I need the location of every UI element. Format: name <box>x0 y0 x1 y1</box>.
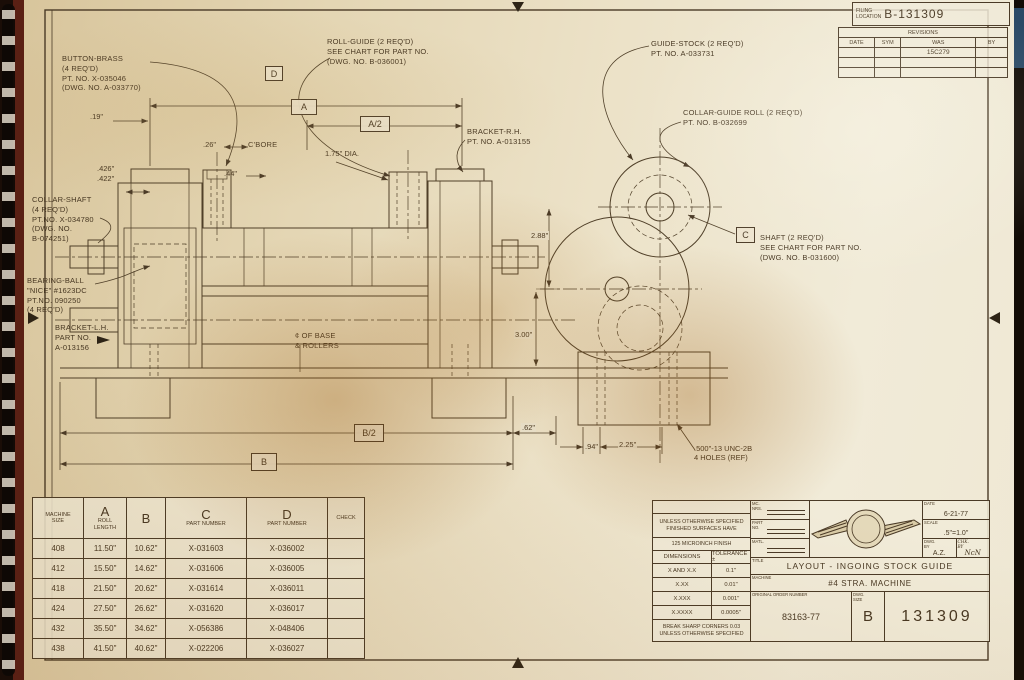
machine-size-chart: MACHINE SIZE AROLL LENGTH B CPART NUMBER… <box>32 497 365 659</box>
dim-288: 2.88" <box>530 231 549 240</box>
photographed-engineering-drawing: FILING LOCATION B-131309 REVISIONS DATE … <box>0 0 1024 680</box>
end-view <box>540 128 722 463</box>
spec-note: UNLESS OTHERWISE SPECIFIED FINISHED SURF… <box>653 514 750 538</box>
dim-thread-note: .500"-13 UNC-2B 4 HOLES (REF) <box>694 444 784 462</box>
chart-header-row: MACHINE SIZE AROLL LENGTH B CPART NUMBER… <box>33 498 365 539</box>
tolerance-row: X.XXX0.001" <box>653 592 750 606</box>
tolerance-row: X AND X.X0.1" <box>653 564 750 578</box>
title-block: UNLESS OTHERWISE SPECIFIED FINISHED SURF… <box>652 500 990 642</box>
checked-by-value: NcN <box>965 549 981 557</box>
filing-location-number: B-131309 <box>884 7 944 21</box>
revisions-col-by: BY <box>976 38 1008 48</box>
revision-row: 15C279 <box>839 48 1008 58</box>
mark-a: A <box>291 99 317 115</box>
side-view <box>55 150 728 418</box>
mark-a-half: A/2 <box>360 116 390 132</box>
revisions-title: REVISIONS <box>839 28 1008 38</box>
mark-b: B <box>251 453 277 471</box>
scale-value: .5"=1.0" <box>944 530 969 538</box>
revision-row <box>839 68 1008 78</box>
machine-row: MACHINE #4 STRA. MACHINE <box>751 575 989 592</box>
spec-empty-row <box>653 501 750 514</box>
revision-row <box>839 58 1008 68</box>
title-block-meta: DATE 6-21-77 SCALE .5"=1.0" DWG. BY A.Z.… <box>922 501 989 557</box>
break-corners-note: BREAK SHARP CORNERS 0.03 UNLESS OTHERWIS… <box>653 620 750 641</box>
chart-row: 43841.50"40.62"X-022206X-036027 <box>33 639 365 659</box>
revisions-col-sym: SYM <box>875 38 901 48</box>
chart-row: 42427.50"26.62"X-031620X-036017 <box>33 599 365 619</box>
binder-rings <box>2 4 15 676</box>
callout-guide-stock: GUIDE-STOCK (2 REQ'D) PT. NO. A-033731 <box>651 39 781 59</box>
dim-175-dia: 1.75" DIA. <box>325 149 359 158</box>
dimension-lines <box>60 98 662 470</box>
dim-225: 2.25" <box>618 440 637 449</box>
callout-bracket-rh: BRACKET-R.H. PT. NO. A-013155 <box>467 127 557 147</box>
tolerance-row: X.XX0.01" <box>653 578 750 592</box>
callout-centerline-base-rollers: ¢ OF BASE & ROLLERS <box>295 331 355 351</box>
callout-cbore: C'BORE <box>248 140 277 150</box>
machine-name: #4 STRA. MACHINE <box>828 579 911 588</box>
filing-location: FILING LOCATION B-131309 <box>852 2 1010 26</box>
tolerance-row: X.XXXX0.0005" <box>653 606 750 620</box>
drawing-title: LAYOUT - INGOING STOCK GUIDE <box>787 561 953 571</box>
drawing-number: 131309 <box>885 592 989 641</box>
chart-row: 41215.50"14.62"X-031606X-036005 <box>33 559 365 579</box>
callout-roll-guide: ROLL-GUIDE (2 REQ'D) SEE CHART FOR PART … <box>327 37 457 66</box>
revisions-col-was: WAS <box>901 38 976 48</box>
mark-c: C <box>736 227 755 243</box>
callout-collar-guide-roll: COLLAR-GUIDE ROLL (2 REQ'D) PT. NO. B-03… <box>683 108 843 128</box>
dim-300: 3.00" <box>514 330 533 339</box>
dim-19: .19" <box>90 112 103 121</box>
dim-422: .422" <box>97 174 114 183</box>
manufacturer-logo-icon <box>810 501 922 557</box>
leader-lines <box>95 46 735 450</box>
callout-shaft: SHAFT (2 REQ'D) SEE CHART FOR PART NO. (… <box>760 233 900 262</box>
callout-bearing-ball: BEARING-BALL "NICE" #1623DC PT.NO. 09025… <box>27 276 107 315</box>
mark-b-half: B/2 <box>354 424 384 442</box>
dim-44: .44" <box>224 169 237 178</box>
date-value: 6-21-77 <box>944 511 968 519</box>
spiral-binding <box>0 0 24 680</box>
title-block-specs: UNLESS OTHERWISE SPECIFIED FINISHED SURF… <box>653 501 751 641</box>
order-number-value: 83163-77 <box>782 612 820 622</box>
finish-note: 125 MICROINCH FINISH <box>653 538 750 551</box>
callout-bracket-lh: BRACKET-L.H. PART NO. A-013156 <box>55 323 125 352</box>
tolerance-header: DIMENSIONSTOLERANCE ± <box>653 551 750 564</box>
filing-location-label: FILING LOCATION <box>853 8 884 20</box>
chart-row: 43235.50"34.62"X-056386X-048406 <box>33 619 365 639</box>
drawn-by-value: A.Z. <box>933 550 946 557</box>
drawing-title-row: TITLE LAYOUT - INGOING STOCK GUIDE <box>751 558 989 575</box>
callout-collar-shaft: COLLAR-SHAFT (4 REQ'D) PT.NO. X-034780 (… <box>32 195 110 244</box>
dim-426: .426" <box>97 164 114 173</box>
callout-button-brass: BUTTON-BRASS (4 REQ'D) PT. NO. X-035046 … <box>62 54 172 93</box>
chart-row: 41821.50"20.62"X-031614X-036011 <box>33 579 365 599</box>
drawing-size-value: B <box>863 608 873 625</box>
dim-26: .26" <box>203 140 216 149</box>
chart-row: 40811.50"10.62"X-031603X-036002 <box>33 539 365 559</box>
drawing-size: DWG. SIZE B <box>852 592 885 641</box>
revisions-col-date: DATE <box>839 38 875 48</box>
dim-62: .62" <box>521 423 536 432</box>
title-block-main: MC. NRS. PART NO. MATL. <box>751 501 989 641</box>
mark-d: D <box>265 66 283 81</box>
title-block-fields: MC. NRS. PART NO. MATL. <box>751 501 810 557</box>
dim-94: .94" <box>584 442 599 451</box>
original-order-number: ORIGINAL ORDER NUMBER 83163-77 <box>751 592 852 641</box>
revisions-table: REVISIONS DATE SYM WAS BY 15C279 <box>838 27 1008 78</box>
